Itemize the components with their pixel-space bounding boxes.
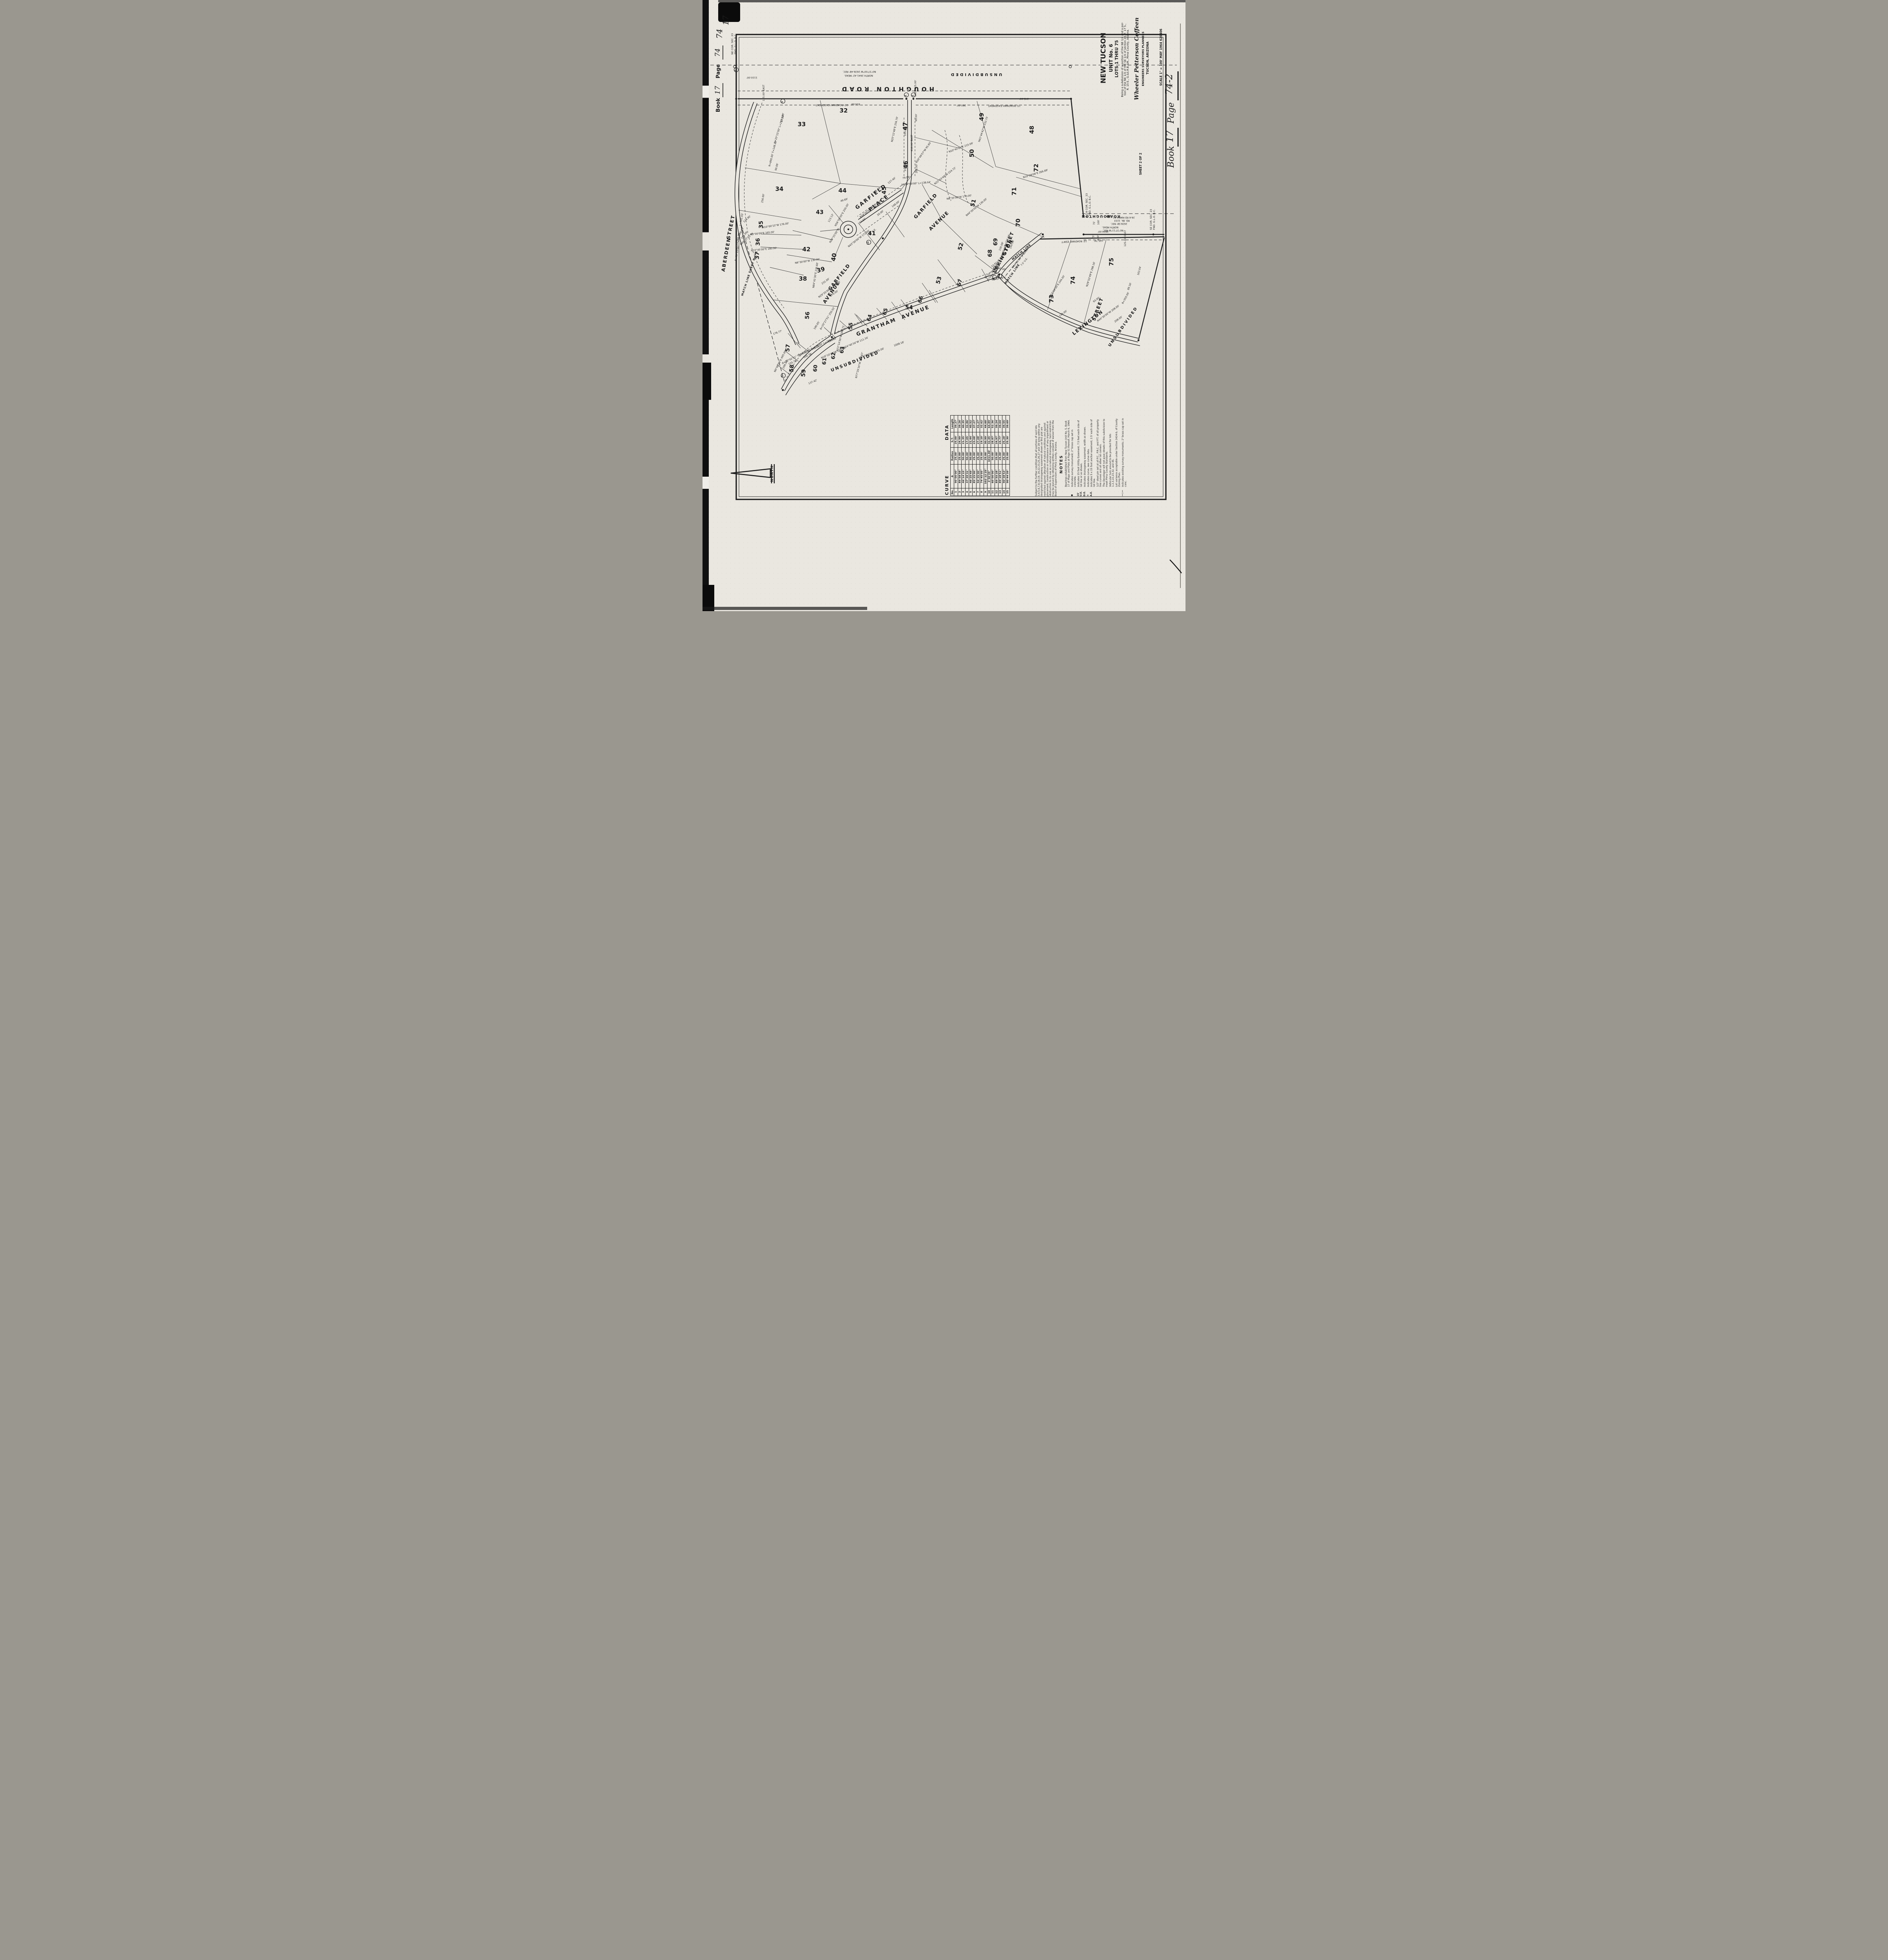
lot-number: 48 <box>1028 126 1035 134</box>
curve-table-cell: 25.00' <box>984 448 987 465</box>
lot-number: 36 <box>755 238 761 245</box>
curve-table-cell: 94°35'00" <box>976 465 980 488</box>
curve-table-row: 1490°38'53"25.00'25.28'39.55' <box>1002 416 1006 496</box>
street-label: GARFIELD <box>913 192 939 220</box>
curve-data-table-block: CURVE DATA No.ΔRadiusS.T.Length 190°00'0… <box>944 421 1010 496</box>
lot-number: 54 <box>905 305 913 311</box>
grantham-avenue-road <box>783 274 999 390</box>
curve-table-cell: 52.36' <box>991 416 995 432</box>
lot-number: 59 <box>800 369 807 377</box>
curve-table-row: 1160°00'00"50.00'28.87'52.36' <box>991 416 995 496</box>
curve-table-header: Δ <box>951 465 954 488</box>
note-symbol <box>1065 487 1070 496</box>
curve-table-cell: 39.55' <box>1002 416 1006 432</box>
map-annotation: 15' ROADWAY ESM'T <box>1061 240 1087 243</box>
margin-handwriting: 74-2 <box>1164 74 1175 95</box>
curve-table-cell: 24.97' <box>995 432 998 448</box>
note-item: 15' U.E.Indicates 15 foot Utility Easeme… <box>1077 418 1083 496</box>
map-annotation: 360.00' <box>957 104 966 107</box>
subject-restriction-paragraph: Subject to the further condition that al… <box>1035 419 1058 496</box>
street-label: AVENUE <box>928 210 950 232</box>
curve-table-cell: 25.00' <box>998 448 1002 465</box>
note-text: Indicates 5 x 15 foot anchor easement, 2… <box>1090 418 1096 487</box>
map-annotation: 75' <box>1093 221 1096 225</box>
curve-table-cell: 3 <box>962 488 965 496</box>
map-annotation: SE COR. SEC. 23 <box>1149 209 1153 230</box>
map-annotation: 90.06' <box>775 163 779 171</box>
curve-table-cell: 37.27' <box>973 416 976 432</box>
curve-table-cell: 50.00' <box>965 448 969 465</box>
lot-number: 40 <box>830 252 838 262</box>
curve-table-cell: 46°14'15" <box>962 465 965 488</box>
notes-heading: NOTES <box>1059 418 1064 474</box>
map-annotation: N63°16'00"E 244.00' <box>1048 274 1066 298</box>
note-symbol <box>1109 487 1115 496</box>
note-text: Indicates drainageway easement, width as… <box>1084 418 1086 487</box>
title-block-line: TUCSON, ARIZONA <box>1146 41 1149 74</box>
curve-table-row: 1389°28'51"25.00'24.77'39.04' <box>998 416 1002 496</box>
map-annotation: 89.16' <box>1127 282 1132 290</box>
lot-number: 49 <box>978 113 985 121</box>
curve-table-cell: 46°25'49" <box>969 465 973 488</box>
margin-handwriting: Page <box>715 64 721 78</box>
curve-table-cell: 89°28'51" <box>998 465 1002 488</box>
note-item: ●Indicates survey monument; 2" brass cap… <box>1071 418 1077 496</box>
title-block-line: NEW TUCSON <box>1100 33 1107 83</box>
note-symbol: ① <box>1087 487 1090 496</box>
map-annotation: 134.90' <box>743 215 752 223</box>
scanned-plat-page: NORTH 3332343536373839404142434445464748… <box>703 0 1185 611</box>
curve-table-title: CURVE DATA <box>944 421 950 496</box>
curve-table-row: 1590°44'39"25.00'25.30'39.69' <box>1006 416 1009 496</box>
title-block-line: R. 15 E., G.&S.R.B.&M., Pima County, Ari… <box>1126 29 1129 90</box>
curve-table-cell: 41.27' <box>976 416 980 432</box>
curve-table-row: 794°35'00"25.00'27.08'41.27' <box>976 416 980 496</box>
note-text: 1/2" steel pin set at all P.C., P.R.C. a… <box>1096 418 1102 487</box>
map-annotation: 125.00' EAST <box>762 85 765 101</box>
curve-table-cell: 24.77' <box>998 432 1002 448</box>
curve-table-cell: 11 <box>991 488 995 496</box>
note-item: A.E.Indicates 5 x 15 foot anchor easemen… <box>1090 418 1096 496</box>
note-text: The Developer will not pave streets of t… <box>1103 418 1108 487</box>
note-text: Lot variance acceptable under Section 24… <box>1115 418 1121 487</box>
boundary-lines <box>738 99 1164 395</box>
map-annotation: NE COR. SEC. 23 <box>731 33 734 54</box>
curve-table-cell: 25.00' <box>976 448 980 465</box>
notes-list: Bearings established from New Tucson Uni… <box>1065 418 1127 496</box>
map-annotation: 416.00' EAST <box>911 135 913 151</box>
curve-table-cell: 37°39'31" <box>965 465 969 488</box>
lot-number: 72 <box>1033 164 1040 172</box>
note-symbol: A.E. <box>1090 487 1096 496</box>
street-label: STREET <box>726 214 736 240</box>
curve-table-header: Length <box>951 416 954 432</box>
map-annotation: 45' <box>1002 268 1006 271</box>
map-annotation: N6°35'00"W 170.00' <box>946 194 972 201</box>
curve-table-cell: 25.00' <box>980 448 984 465</box>
note-item: D.E.Indicates drainageway easement, widt… <box>1084 418 1086 496</box>
curve-table-cell: 8 <box>980 488 984 496</box>
map-annotation: 1110.00' <box>746 76 757 79</box>
curve-table-cell: 85°25'00" <box>973 465 976 488</box>
note-symbol <box>1115 487 1121 496</box>
note-symbol: 15' U.E. <box>1077 487 1083 496</box>
curve-table-row: 103°40'39"1011.00'32.45'64.89' <box>988 416 991 496</box>
curve-table-cell: 6 <box>973 488 976 496</box>
curve-table-cell: 13 <box>998 488 1002 496</box>
note-item: —◇—Indicates existing survey monuments; … <box>1122 418 1127 496</box>
margin-handwriting: 17 <box>714 86 722 94</box>
lot-number: 52 <box>957 242 965 251</box>
curve-marker-number: 1 <box>781 101 784 103</box>
title-block-line: SHEET 2 OF 2 <box>1139 153 1142 175</box>
curve-table-cell: 32.86' <box>965 416 969 432</box>
curve-marker-number: 1 <box>734 69 737 71</box>
curve-table-row: 874°45'05"25.00'19.10'32.62' <box>980 416 984 496</box>
lot-number: 75 <box>1108 258 1115 266</box>
notes-block: Subject to the further condition that al… <box>1035 418 1134 496</box>
note-symbol: D.E. <box>1084 487 1086 496</box>
note-text: Indicates 15 foot Utility Easement, 7.5 … <box>1077 418 1083 487</box>
curve-table-cell: 90°00'00" <box>954 465 958 488</box>
street-label: ABERDEEN <box>721 237 732 272</box>
map-annotation: Δ=34°00'00" L=138.64' <box>901 181 931 187</box>
curve-table-cell: 5 <box>969 488 973 496</box>
curve-table-row: 1289°55'28"25.00'24.97'39.24' <box>995 416 998 496</box>
lot-number: 34 <box>775 185 784 192</box>
note-item: Bearings established from New Tucson Uni… <box>1065 418 1070 496</box>
curve-table-cell: 10 <box>988 488 991 496</box>
note-text: Bearings established from New Tucson Uni… <box>1065 418 1070 487</box>
lot-number: 33 <box>798 121 806 128</box>
map-annotation: 2624.00' <box>1098 230 1109 233</box>
curve-table-cell: 2 <box>958 488 961 496</box>
note-text: Indicates curve, see curve data. <box>1087 418 1090 487</box>
title-block-layer: NEW TUCSONUNIT No. 6LOTS 1 THRU 75Being … <box>1100 18 1163 175</box>
margin-handwriting: Book <box>715 98 721 112</box>
curve-table-cell: 25.00' <box>995 448 998 465</box>
curve-table-cell: 25.00' <box>1006 448 1009 465</box>
curve-table-cell: 1011.00' <box>988 448 991 465</box>
map-annotation: 90.00' <box>915 114 918 122</box>
map-annotation: E 1/4 COR. SEC. 23 <box>1085 193 1088 218</box>
curve-table-cell: 9 <box>984 488 987 496</box>
title-block-line: Wheeler Petterson Coffeen <box>1134 18 1140 100</box>
curve-table-cell: 25.00' <box>958 448 961 465</box>
map-annotation: 816.68' <box>851 103 860 105</box>
street-label: ROAD <box>1106 214 1120 218</box>
map-annotation: FND. G.L.O. B.C. <box>734 34 737 54</box>
curve-table-row: 190°00'00"25.00'25.00'39.27' <box>954 416 958 496</box>
note-text: Indicates existing survey monuments; 2" … <box>1122 418 1127 487</box>
map-annotation: N29°02'49"E 298.16' <box>1086 261 1096 287</box>
curve-table-cell: 74°45'05" <box>980 465 984 488</box>
curve-table-cell: 17.05' <box>965 432 969 448</box>
curve-table-cell: 1 <box>954 488 958 496</box>
curve-table-cell: 40.35' <box>962 416 965 432</box>
curve-table-cell: 102°12'25" <box>984 465 987 488</box>
title-block-line: SCALE 1" = 100' MAY 1964 620406 <box>1159 29 1163 86</box>
map-annotation: 273.89' <box>781 113 785 122</box>
curve-table-cell: 39.04' <box>998 416 1002 432</box>
note-item: 1/2" steel pin set at all P.C., P.R.C. a… <box>1096 418 1102 496</box>
annotations-layer: 1110.00'125.00' EASTN0°37'00"W 2639.48' … <box>731 33 1156 385</box>
lot-number: 43 <box>816 209 823 216</box>
map-annotation: FND. G.L.O. B.C. <box>1088 195 1091 216</box>
margin-handwriting: Page <box>1166 102 1176 124</box>
lot-number: 55 <box>848 322 854 330</box>
title-block-line: ENGINEERS SURVEYORS PLANNERS <box>1142 31 1145 86</box>
curve-table-cell: 39.69' <box>1006 416 1009 432</box>
note-text: Vehicular turn around to be provided for… <box>1109 418 1115 487</box>
map-annotation: N24°40'34"W 111.34' <box>843 336 869 349</box>
curve-table-cell: 4 <box>965 488 969 496</box>
map-annotation: N3°00'00"E 165.00' <box>750 230 775 236</box>
margin-handwriting: 17 <box>1164 130 1175 142</box>
curve-table-cell: 90°38'53" <box>1002 465 1006 488</box>
map-annotation: 285.00' <box>915 164 918 173</box>
map-annotation: 113.13' <box>828 213 834 223</box>
curve-table-cell: 25.00' <box>954 448 958 465</box>
curve-table-cell: 32.45' <box>988 432 991 448</box>
curve-table-header: S.T. <box>951 432 954 448</box>
map-annotation: 100' <box>1097 235 1100 240</box>
curve-table-cell: 7 <box>976 488 980 496</box>
street-label: UNSUBDIVIDED <box>830 350 880 373</box>
curve-table-row: 289°58'58"25.00'24.99'39.26' <box>958 416 961 496</box>
curve-table-cell: 40.52' <box>969 416 973 432</box>
curve-table-cell: 21.35' <box>962 432 965 448</box>
note-symbol <box>1096 487 1102 496</box>
curve-table-cell: 3°40'39" <box>988 465 991 488</box>
curve-table-cell: 25.00' <box>1002 448 1006 465</box>
curve-table-header: Radius <box>951 448 954 465</box>
margin-handwriting: 17 <box>721 15 730 25</box>
curve-table-cell: 25.28' <box>1002 432 1006 448</box>
map-annotation: NORTH 2641.42' MEAS. <box>844 74 873 77</box>
map-annotation: 155.00' <box>904 127 907 136</box>
margin-handwriting: 74 <box>715 29 724 38</box>
lot-number: 32 <box>840 107 848 114</box>
lot-number: 68 <box>987 249 993 257</box>
map-annotation: N25°12'48"E 256.70' <box>890 116 899 142</box>
curve-table-cell: 25.30' <box>1006 432 1009 448</box>
map-annotation: 163.04' <box>1137 266 1142 276</box>
map-annotation: 2639.58' REC. <box>1111 222 1127 225</box>
curve-table-cell: 30.99' <box>984 432 987 448</box>
curve-table-row: 346°14'15"50.00'21.35'40.35' <box>962 416 965 496</box>
street-corridors <box>737 100 1138 390</box>
map-annotation: R=350.00' <box>1122 292 1130 305</box>
map-annotation: 100' <box>1097 220 1100 225</box>
note-text: Indicates survey monument; 2" brass cap … <box>1071 418 1077 487</box>
curve-table-cell: 12 <box>995 488 998 496</box>
map-annotation: N22°43'48"W 224.72' <box>933 166 957 185</box>
map-annotation: 176.77' <box>773 330 782 336</box>
curve-table-row: 437°39'31"50.00'17.05'32.86' <box>965 416 969 496</box>
curve-table-cell: 25.00' <box>973 448 976 465</box>
map-annotation: Δ=45°15'00" <box>734 245 740 261</box>
map-annotation: FND. G.L.O. B.C. <box>1153 209 1156 230</box>
curve-title-right: DATA <box>944 425 949 440</box>
north-arrow: NORTH <box>731 464 774 483</box>
curve-table-cell: 39.24' <box>995 416 998 432</box>
map-annotation: 208.00' <box>1114 316 1123 323</box>
garfield-avenue-road <box>832 100 910 337</box>
curve-marker-number: 11 <box>866 241 870 245</box>
street-label: UNSUBDIVIDED <box>949 72 1002 76</box>
curve-table-cell: 24.99' <box>958 432 961 448</box>
lot-number: 44 <box>839 187 847 194</box>
map-annotation: 15' ROADWAY EASEMENT <box>816 103 848 107</box>
curve-table-cell: 27.08' <box>976 432 980 448</box>
map-annotation: 127.40' <box>888 177 897 185</box>
map-annotation: RD. Bk. 1233 <box>1114 219 1129 222</box>
map-annotation: 1008.18' <box>893 341 905 347</box>
lot-number: 60 <box>812 365 819 372</box>
map-annotation: 231.00' <box>821 278 830 285</box>
map-annotation: N10°00'15"W 176.00' <box>762 222 789 229</box>
map-annotation: 345.00' <box>1019 97 1029 100</box>
curve-table-cell: 25.00' <box>954 432 958 448</box>
curve-table-cell: 50.00' <box>969 448 973 465</box>
lot-number: 56 <box>804 311 811 319</box>
note-item: ①Indicates curve, see curve data. <box>1087 418 1090 496</box>
lot-numbers-layer: 3332343536373839404142434445464748495051… <box>754 107 1115 377</box>
street-label: HOUGHTON ROAD <box>839 85 934 93</box>
plat-map-drawing: NORTH 3332343536373839404142434445464748… <box>703 0 1185 611</box>
curve-table-row: 685°25'00"25.00'23.08'37.27' <box>973 416 976 496</box>
curve-marker-number: 1 <box>904 94 907 96</box>
curve-table-header: No. <box>951 488 954 496</box>
curve-table-cell: 60°00'00" <box>991 465 995 488</box>
note-item: The Developer will not pave streets of t… <box>1103 418 1108 496</box>
curve-table-cell: 23.08' <box>973 432 976 448</box>
curve-table-cell: 28.87' <box>991 432 995 448</box>
map-annotation: 75' <box>1092 235 1095 239</box>
map-annotation: 210.00' <box>904 162 907 171</box>
curve-table-cell: 64.89' <box>988 416 991 432</box>
curve-marker-number: 10 <box>997 275 1000 279</box>
map-annotation: 15' ROADWAY EASEMENT <box>988 104 1021 107</box>
map-annotation: N84°41'30"E 230.60' <box>812 262 819 288</box>
curve-table-cell: 19.10' <box>980 432 984 448</box>
curve-table-cell: 89°55'28" <box>995 465 998 488</box>
north-arrow-label: NORTH <box>770 465 774 482</box>
curve-table-cell: 44.60' <box>984 416 987 432</box>
map-annotation: N0°37'00"W 2639.48' REC. <box>842 70 876 73</box>
curve-marker-number: 8 <box>993 268 997 270</box>
curve-table-cell: 39.26' <box>958 416 961 432</box>
lot-number: 53 <box>935 276 943 285</box>
map-annotation: 49.69' <box>840 198 848 203</box>
curve-table-cell: 14 <box>1002 488 1006 496</box>
margin-handwriting: 74 <box>714 48 722 57</box>
lot-number: 70 <box>1015 219 1022 227</box>
lot-number: 74 <box>1069 276 1077 285</box>
map-annotation: NORTH MEAS. <box>1102 226 1118 229</box>
map-annotation: 125.00' EAST <box>1124 230 1127 247</box>
lot-number: 69 <box>993 238 999 245</box>
curve-marker-number: 1 <box>911 94 914 96</box>
lot-number: 42 <box>802 246 811 253</box>
curve-marker-number: 9 <box>992 277 995 279</box>
curve-table-cell: 90°44'39" <box>1006 465 1009 488</box>
note-item: Vehicular turn around to be provided for… <box>1109 418 1115 496</box>
margin-handwriting: Book <box>1166 146 1176 168</box>
curve-table-cell: 50.00' <box>991 448 995 465</box>
curve-table-cell: 39.27' <box>954 416 958 432</box>
curve-table-row: 546°25'49"50.00'21.44'40.52' <box>969 416 973 496</box>
curve-table-cell: 50.00' <box>962 448 965 465</box>
curve-data-table: No.ΔRadiusS.T.Length 190°00'00"25.00'25.… <box>950 415 1010 496</box>
title-block-line: LOTS 1 THRU 75 <box>1115 40 1119 77</box>
curve-table-cell: 32.62' <box>980 416 984 432</box>
curve-table-cell: 89°58'58" <box>958 465 961 488</box>
lot-number: 50 <box>968 149 975 158</box>
curve-table-cell: 21.44' <box>969 432 973 448</box>
lot-number: 71 <box>1011 187 1018 196</box>
map-annotation: 137.42' <box>808 379 818 385</box>
curve-marker-number: 7 <box>781 376 784 377</box>
map-annotation: N30°49'57"W 95.80' <box>915 141 932 164</box>
note-symbol: ● <box>1071 487 1077 496</box>
curve-title-left: CURVE <box>944 475 949 495</box>
lot-number: 38 <box>799 275 807 282</box>
curve-table-row: 9102°12'25"25.00'30.99'44.60' <box>984 416 987 496</box>
curve-table-cell: 15 <box>1006 488 1009 496</box>
note-symbol: —◇— <box>1122 487 1127 496</box>
note-item: Lot variance acceptable under Section 24… <box>1115 418 1121 496</box>
note-symbol <box>1103 487 1108 496</box>
title-block-line: UNIT No. 6 <box>1108 44 1114 72</box>
map-annotation: 256.00' <box>761 193 765 203</box>
